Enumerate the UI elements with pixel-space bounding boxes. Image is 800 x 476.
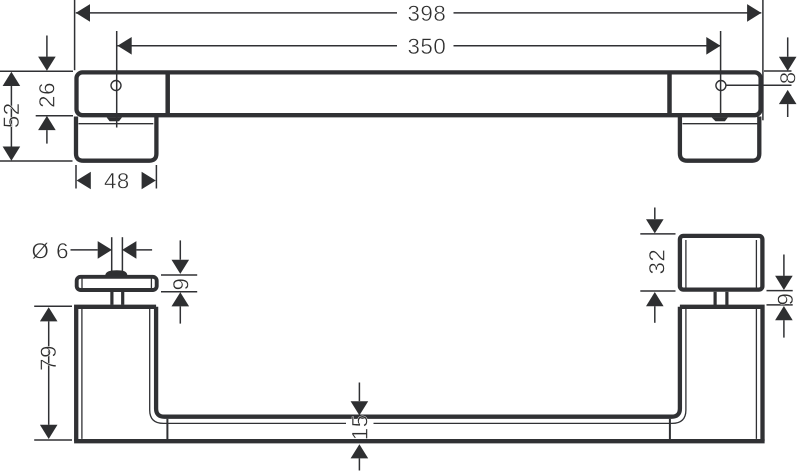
svg-text:26: 26 bbox=[35, 82, 60, 108]
svg-text:398: 398 bbox=[407, 1, 446, 26]
svg-text:32: 32 bbox=[645, 249, 670, 275]
svg-text:350: 350 bbox=[407, 34, 446, 59]
svg-text:52: 52 bbox=[0, 102, 24, 128]
svg-text:15: 15 bbox=[347, 414, 372, 440]
svg-text:8: 8 bbox=[775, 71, 800, 84]
svg-text:48: 48 bbox=[104, 168, 130, 193]
svg-text:Ø 6: Ø 6 bbox=[32, 238, 70, 263]
svg-text:9: 9 bbox=[169, 278, 194, 291]
svg-text:9: 9 bbox=[773, 293, 798, 306]
svg-text:79: 79 bbox=[36, 345, 61, 371]
